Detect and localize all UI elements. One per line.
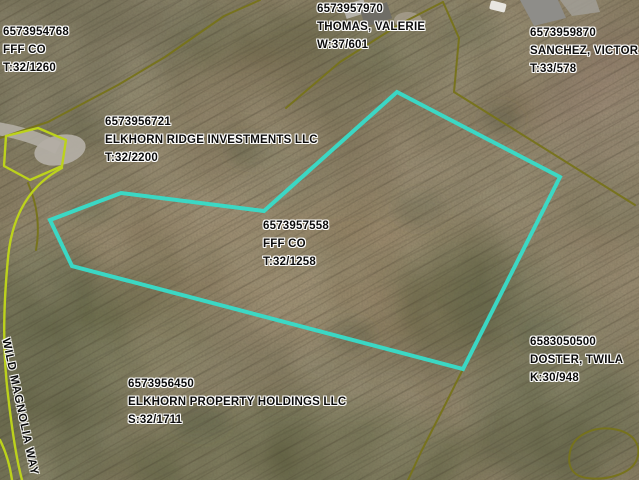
parcel-owner: FFF CO [263, 235, 329, 253]
parcel-label-6573956721: 6573956721 ELKHORN RIDGE INVESTMENTS LLC… [105, 113, 318, 167]
parcel-label-6573959870: 6573959870 SANCHEZ, VICTOR T:33/578 [530, 24, 638, 78]
parcel-owner: FFF CO [3, 41, 69, 59]
parcel-owner: ELKHORN RIDGE INVESTMENTS LLC [105, 131, 318, 149]
parcel-id: 6573956450 [128, 375, 346, 393]
parcel-deed-ref: W:37/601 [317, 36, 425, 54]
parcel-id: 6573956721 [105, 113, 318, 131]
parcel-owner: SANCHEZ, VICTOR [530, 42, 638, 60]
parcel-id: 6573957558 [263, 217, 329, 235]
parcel-id: 6573959870 [530, 24, 638, 42]
parcel-id: 6573954768 [3, 23, 69, 41]
parcel-id: 6573957970 [317, 0, 425, 18]
parcel-owner: DOSTER, TWILA [530, 351, 623, 369]
parcel-label-6573957970: 6573957970 THOMAS, VALERIE W:37/601 [317, 0, 425, 54]
parcel-deed-ref: T:33/578 [530, 60, 638, 78]
parcel-label-6573954768: 6573954768 FFF CO T:32/1260 [3, 23, 69, 77]
parcel-owner: ELKHORN PROPERTY HOLDINGS LLC [128, 393, 346, 411]
parcel-deed-ref: S:32/1711 [128, 411, 346, 429]
parcel-owner: THOMAS, VALERIE [317, 18, 425, 36]
parcel-deed-ref: K:30/948 [530, 369, 623, 387]
parcel-id: 6583050500 [530, 333, 623, 351]
parcel-label-6583050500: 6583050500 DOSTER, TWILA K:30/948 [530, 333, 623, 387]
parcel-label-6573956450: 6573956450 ELKHORN PROPERTY HOLDINGS LLC… [128, 375, 346, 429]
parcel-deed-ref: T:32/1260 [3, 59, 69, 77]
parcel-deed-ref: T:32/1258 [263, 253, 329, 271]
parcel-label-6573957558-selected: 6573957558 FFF CO T:32/1258 [263, 217, 329, 271]
gis-map-canvas[interactable]: 6573954768 FFF CO T:32/1260 6573957970 T… [0, 0, 639, 480]
parcel-deed-ref: T:32/2200 [105, 149, 318, 167]
